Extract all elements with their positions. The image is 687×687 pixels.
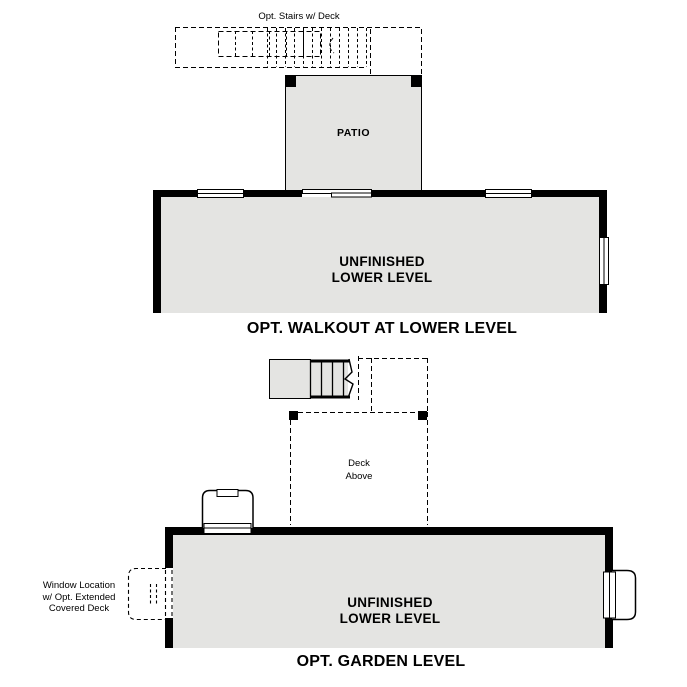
garden-window-well-right: [604, 571, 636, 620]
walkout-room-label: UNFINISHED LOWER LEVEL: [163, 254, 601, 286]
deck-post-left: [289, 411, 298, 420]
garden-floor: [173, 535, 605, 648]
opt-stairs-deck-outline: [175, 27, 422, 75]
opt-stairs-deck-label: Opt. Stairs w/ Deck: [175, 11, 423, 23]
garden-room-label-line2: LOWER LEVEL: [173, 611, 607, 627]
deck-stairs: [270, 359, 354, 399]
optional-window-symbol: [151, 584, 157, 606]
walkout-left-wall: [153, 190, 161, 313]
floorplan-canvas: Opt. Stairs w/ Deck PATIO UNFINISHED LOW…: [0, 0, 687, 687]
deck-above-label: Deck Above: [291, 457, 427, 483]
garden-optional-window-well: [129, 569, 173, 620]
patio-post-left: [285, 76, 296, 87]
optional-window-note: Window Location w/ Opt. Extended Covered…: [33, 580, 125, 615]
walkout-building: [153, 190, 607, 313]
walkout-room-label-line1: UNFINISHED: [163, 254, 601, 270]
deck-above-label-line2: Above: [291, 470, 427, 483]
optional-window-note-line2: w/ Opt. Extended: [33, 592, 125, 604]
garden-room-label: UNFINISHED LOWER LEVEL: [173, 595, 607, 627]
garden-window-well-top: [203, 490, 254, 534]
stair-landing: [270, 360, 311, 399]
walkout-room-label-line2: LOWER LEVEL: [163, 270, 601, 286]
garden-caption: OPT. GARDEN LEVEL: [131, 653, 631, 671]
walkout-window-left: [197, 190, 244, 198]
walkout-window-right: [485, 190, 532, 198]
deck-post-right: [418, 411, 427, 420]
garden-room-label-line1: UNFINISHED: [173, 595, 607, 611]
garden-left-wall-upper: [165, 527, 173, 568]
optional-window-note-line1: Window Location: [33, 580, 125, 592]
optional-window-note-line3: Covered Deck: [33, 603, 125, 615]
patio-sliding-door: [302, 190, 372, 198]
deck-above-label-line1: Deck: [291, 457, 427, 470]
garden-building: [165, 527, 613, 648]
garden-left-wall-lower: [165, 618, 173, 648]
patio-label: PATIO: [285, 127, 422, 139]
walkout-caption: OPT. WALKOUT AT LOWER LEVEL: [132, 320, 632, 338]
patio-post-right: [411, 76, 422, 87]
